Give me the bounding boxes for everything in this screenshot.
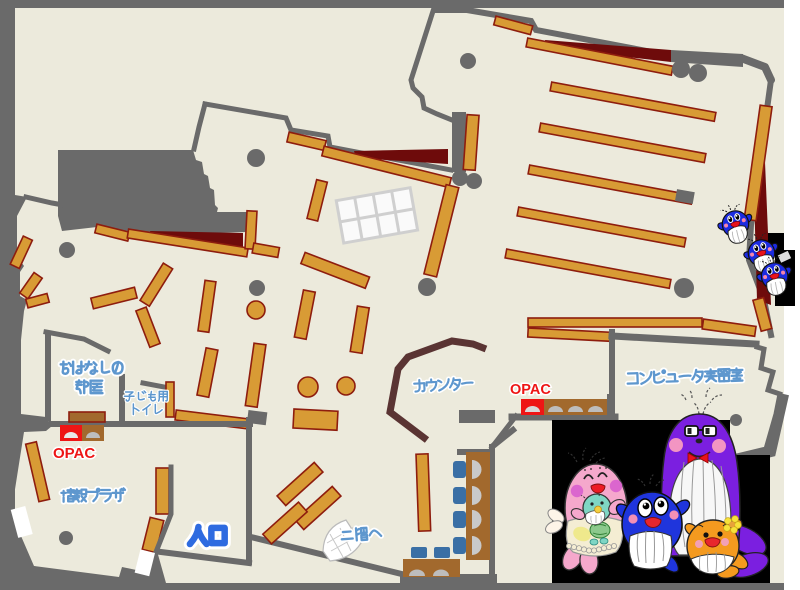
svg-text:OPAC: OPAC [510,382,551,398]
svg-text:OPAC: OPAC [53,445,95,462]
